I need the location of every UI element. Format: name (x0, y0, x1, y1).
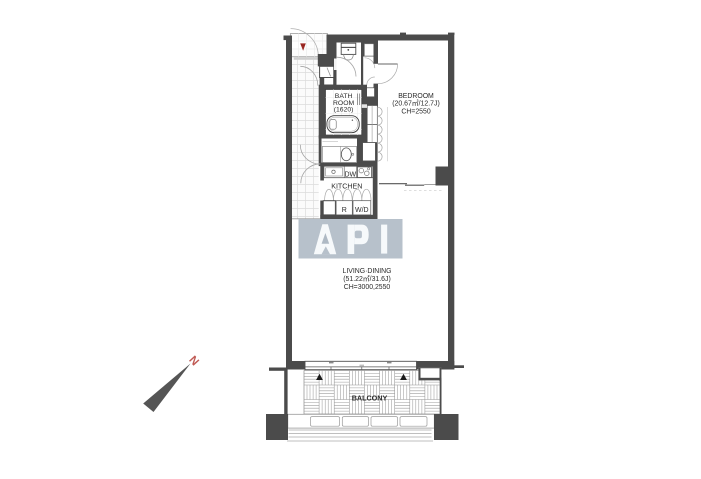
svg-text:DW: DW (344, 171, 356, 178)
svg-text:CH=2550: CH=2550 (401, 108, 430, 115)
svg-text:R: R (342, 207, 347, 214)
svg-text:CH=3000,2550: CH=3000,2550 (344, 284, 391, 291)
svg-text:W/D: W/D (355, 207, 369, 214)
svg-text:LIVING·DINING: LIVING·DINING (342, 268, 391, 275)
svg-text:BALCONY: BALCONY (352, 394, 388, 403)
svg-text:BEDROOM: BEDROOM (398, 93, 434, 100)
svg-text:(20.67㎡/12.7J): (20.67㎡/12.7J) (392, 100, 440, 108)
svg-text:(1620): (1620) (334, 106, 354, 113)
svg-text:(51.22㎡/31.6J): (51.22㎡/31.6J) (343, 275, 391, 283)
